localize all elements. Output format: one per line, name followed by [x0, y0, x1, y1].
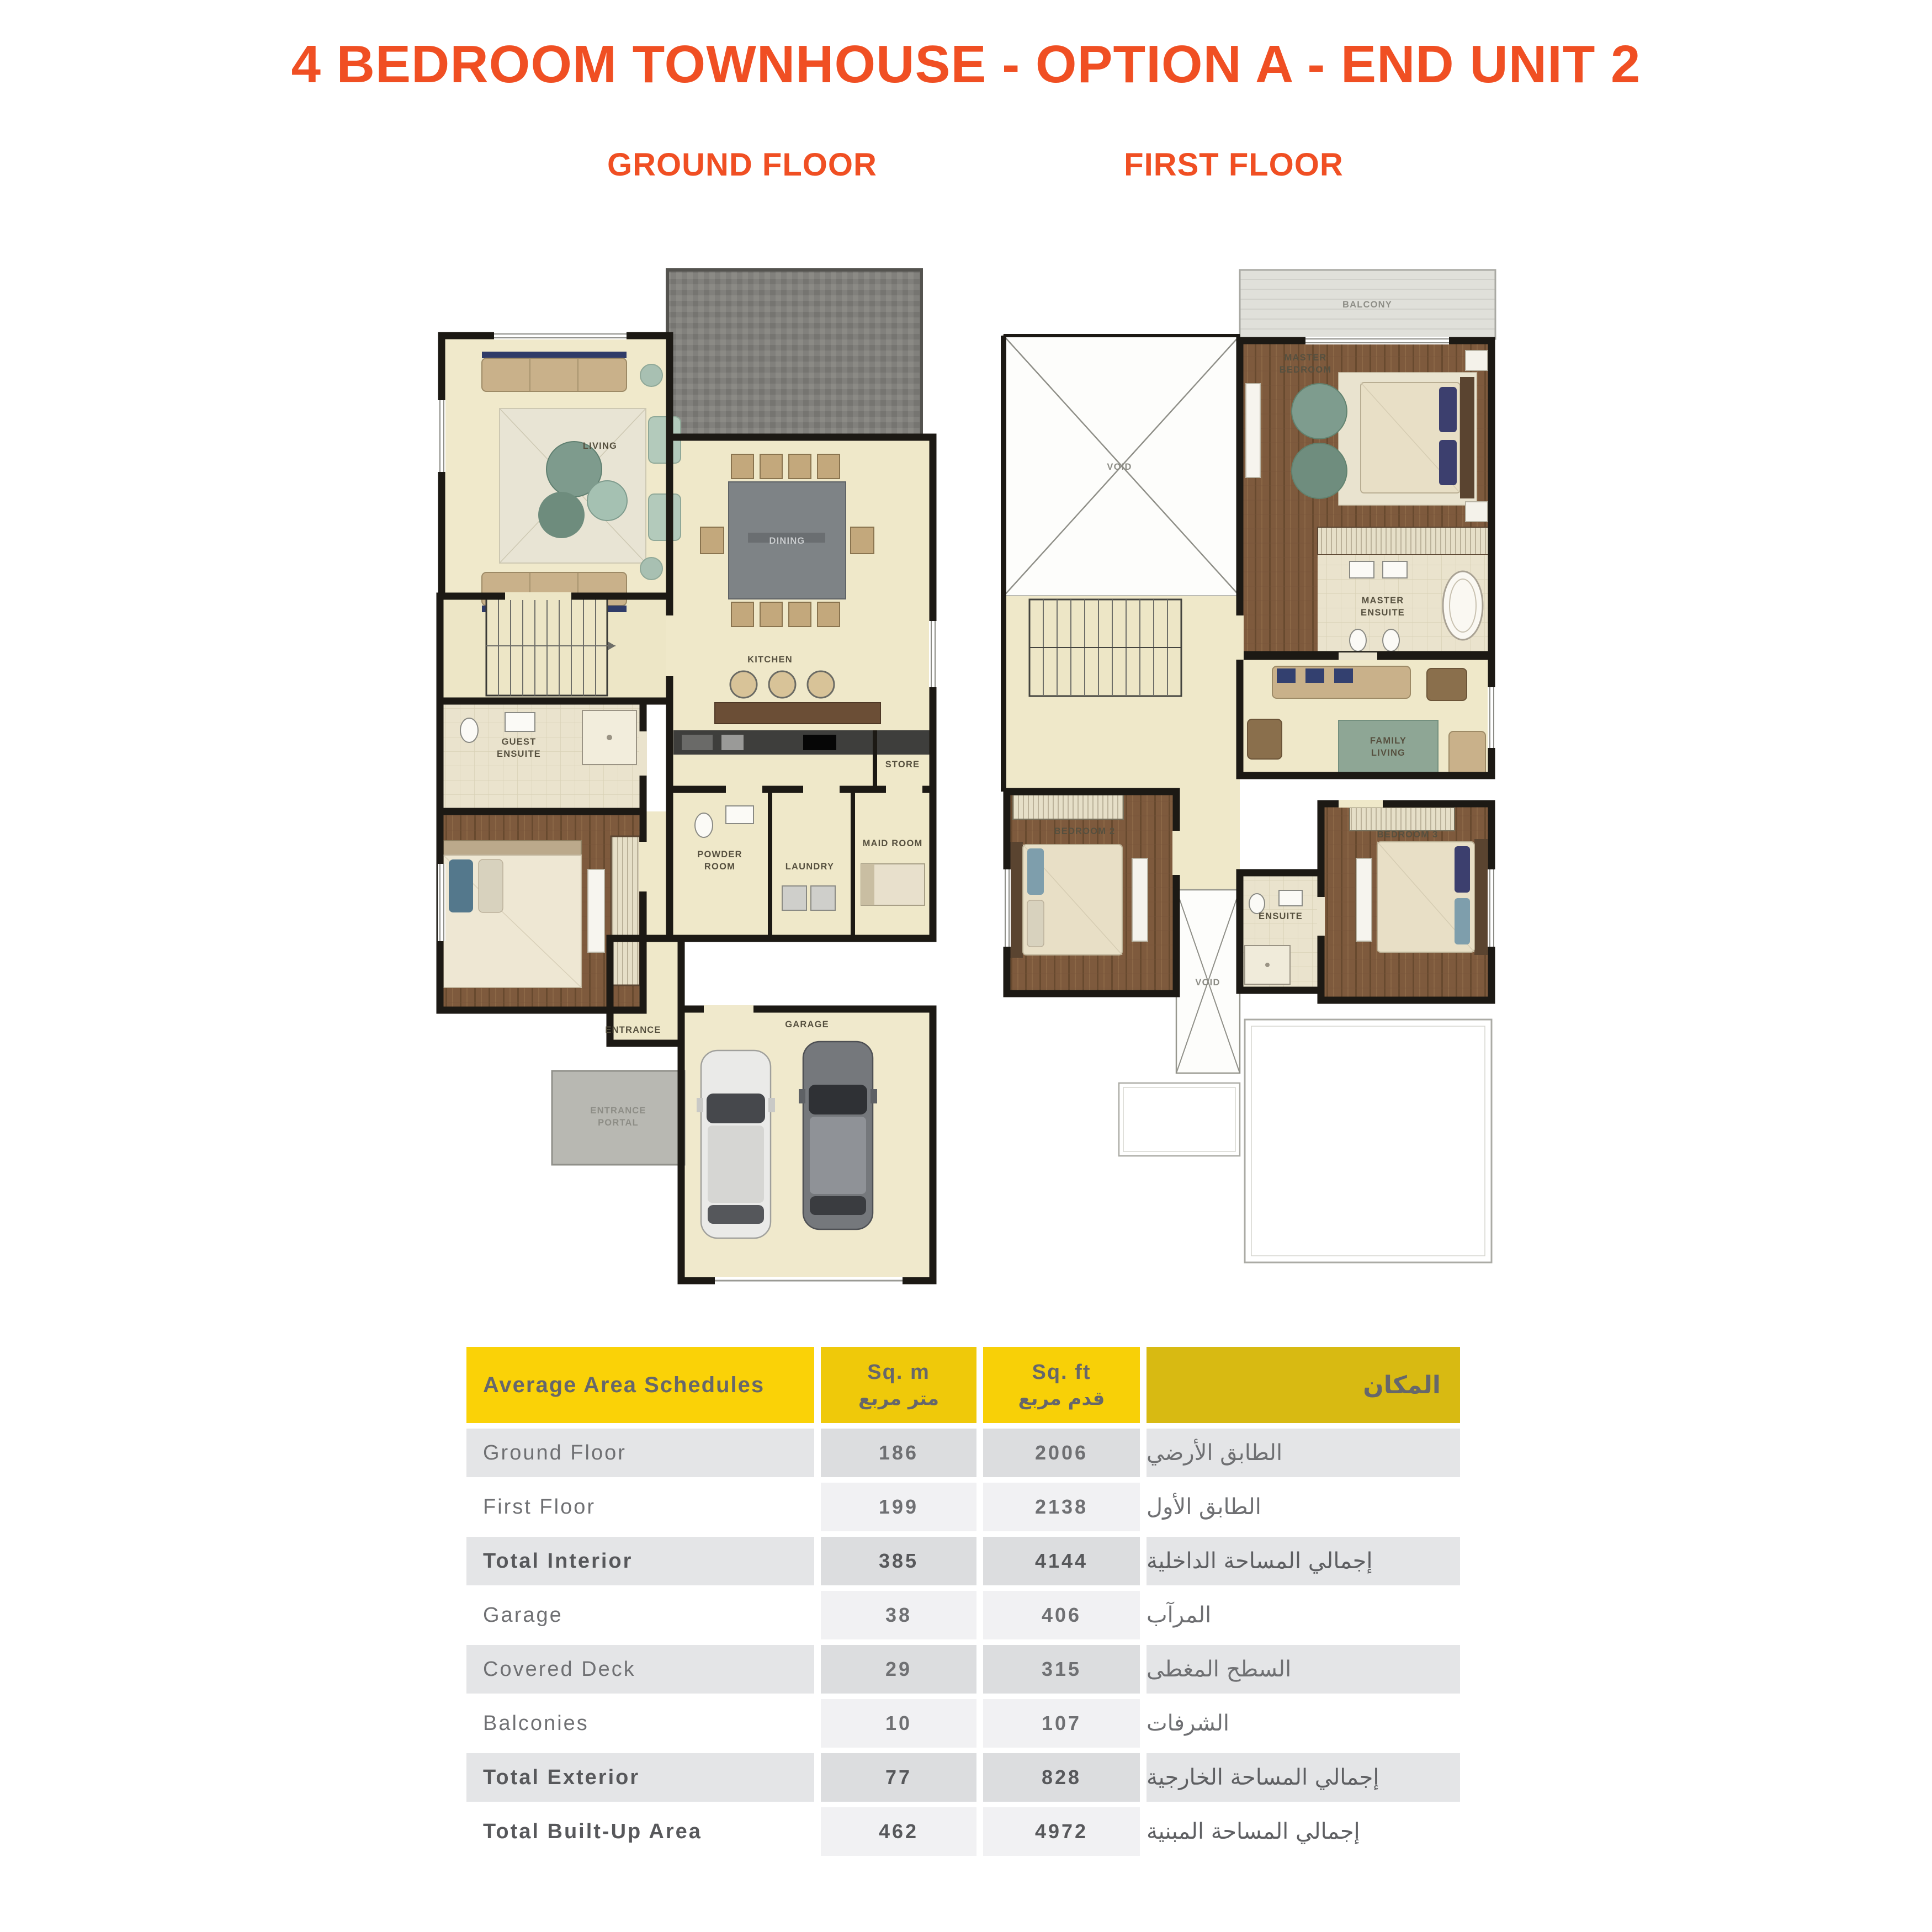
- table-row-sqm: 29: [821, 1645, 976, 1694]
- table-row-sqm: 462: [821, 1807, 976, 1856]
- ensuite-label: ENSUITE: [1259, 911, 1303, 921]
- brochure-page: 4 BEDROOM TOWNHOUSE - OPTION A - END UNI…: [0, 0, 1932, 1932]
- table-row-label: Covered Deck: [466, 1645, 814, 1694]
- car-gray: [799, 1042, 877, 1229]
- table-row-sqm: 385: [821, 1537, 976, 1585]
- table-row-sqm: 10: [821, 1699, 976, 1748]
- table-row-sqft: 828: [983, 1753, 1140, 1802]
- dining-label: DINING: [769, 536, 805, 546]
- master-ensuite-label-1: MASTER: [1362, 596, 1404, 606]
- first-floor-plan: BALCONY VOID MASTER BEDROOM MASTER ENSUI…: [996, 235, 1543, 1289]
- table-header-sqft: Sq. ft قدم مربع: [983, 1347, 1140, 1423]
- stairs: [486, 596, 615, 696]
- table-header-schedules: Average Area Schedules: [466, 1347, 814, 1423]
- void-small-label: VOID: [1195, 978, 1220, 988]
- table-header-schedules-label: Average Area Schedules: [483, 1373, 765, 1398]
- table-row-sqm: 199: [821, 1483, 976, 1531]
- stairs-first: [1029, 599, 1181, 696]
- table-row-label: First Floor: [466, 1483, 814, 1531]
- table-row-sqm: 38: [821, 1591, 976, 1639]
- balcony-label: BALCONY: [1342, 300, 1392, 310]
- table-row-sqm: 186: [821, 1429, 976, 1477]
- master-wardrobe: [1318, 527, 1492, 555]
- table-row-sqft: 4972: [983, 1807, 1140, 1856]
- living-label: LIVING: [583, 441, 617, 451]
- powder-label-2: ROOM: [704, 862, 735, 872]
- table-row-sqft: 2006: [983, 1429, 1140, 1477]
- master-ensuite-label-2: ENSUITE: [1361, 608, 1405, 618]
- table-row-arabic: إجمالي المساحة الداخلية: [1147, 1537, 1460, 1585]
- table-row-label: Balconies: [466, 1699, 814, 1748]
- table-row-sqft: 406: [983, 1591, 1140, 1639]
- maid-room-label: MAID ROOM: [863, 838, 923, 848]
- ground-floor-heading: GROUND FLOOR: [607, 146, 867, 183]
- table-row-label: Total Built-Up Area: [466, 1807, 814, 1856]
- table-header-sqm: Sq. m متر مربع: [821, 1347, 976, 1423]
- kitchen-label: KITCHEN: [747, 655, 793, 665]
- table-row-arabic: السطح المغطى: [1147, 1645, 1460, 1694]
- bedroom2-label: BEDROOM 2: [1054, 826, 1116, 836]
- table-row-label: Total Exterior: [466, 1753, 814, 1802]
- table-row-label: Total Interior: [466, 1537, 814, 1585]
- table-row-sqft: 2138: [983, 1483, 1140, 1531]
- guest-ensuite-label-1: GUEST: [502, 737, 537, 747]
- store-label: STORE: [885, 760, 920, 769]
- table-row-sqft: 4144: [983, 1537, 1140, 1585]
- first-floor-heading: FIRST FLOOR: [1121, 146, 1347, 183]
- page-title: 4 BEDROOM TOWNHOUSE - OPTION A - END UNI…: [0, 34, 1932, 95]
- table-row-sqft: 315: [983, 1645, 1140, 1694]
- covered-deck: [667, 270, 921, 437]
- table-row-arabic: إجمالي المساحة الخارجية: [1147, 1753, 1460, 1802]
- portal-label-1: ENTRANCE: [590, 1106, 646, 1116]
- laundry-label: LAUNDRY: [785, 862, 834, 872]
- entrance-label: ENTRANCE: [605, 1025, 661, 1035]
- roof-outline: [1245, 1020, 1492, 1262]
- table-row-arabic: الطابق الأول: [1147, 1483, 1460, 1531]
- portal-label-2: PORTAL: [598, 1118, 639, 1128]
- table-row-arabic: المرآب: [1147, 1591, 1460, 1639]
- master-bedroom-label-2: BEDROOM: [1280, 365, 1332, 375]
- terrace-outline: [1119, 1083, 1240, 1156]
- guest-ensuite-label-2: ENSUITE: [497, 749, 541, 759]
- table-row-label: Garage: [466, 1591, 814, 1639]
- master-bedroom-label-1: MASTER: [1285, 353, 1327, 363]
- family-living-label-2: LIVING: [1371, 748, 1405, 758]
- void-large-label: VOID: [1107, 462, 1132, 472]
- table-header-place: المكان: [1147, 1347, 1460, 1423]
- table-row-sqft: 107: [983, 1699, 1140, 1748]
- garage-label: GARAGE: [785, 1020, 829, 1029]
- powder-label-1: POWDER: [697, 850, 742, 859]
- car-white: [697, 1050, 775, 1238]
- bedroom3-label: BEDROOM 3: [1377, 830, 1439, 840]
- table-row-arabic: الشرفات: [1147, 1699, 1460, 1748]
- family-living-label-1: FAMILY: [1370, 736, 1406, 746]
- ground-floor-plan: LIVING DINING KITCHEN STORE POWDER ROOM …: [417, 235, 963, 1328]
- table-row-label: Ground Floor: [466, 1429, 814, 1477]
- area-table: Average Area Schedules Sq. m متر مربع Sq…: [466, 1347, 1460, 1856]
- table-row-arabic: إجمالي المساحة المبنية: [1147, 1807, 1460, 1856]
- table-row-sqm: 77: [821, 1753, 976, 1802]
- table-row-arabic: الطابق الأرضي: [1147, 1429, 1460, 1477]
